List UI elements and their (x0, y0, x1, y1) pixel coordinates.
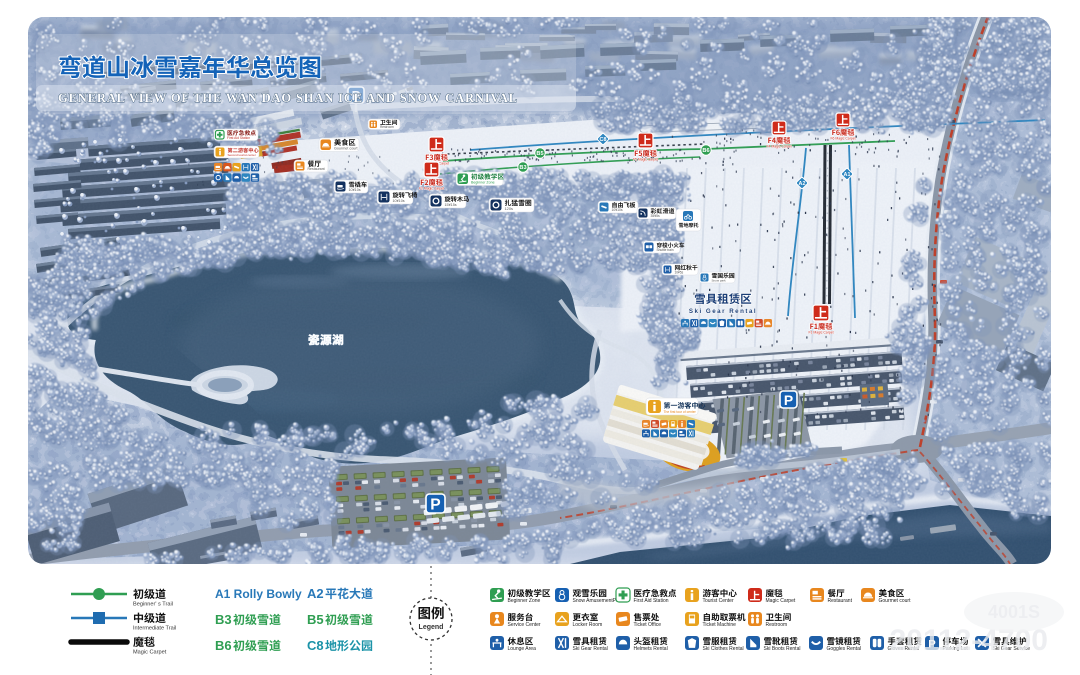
svg-text:B6: B6 (702, 148, 709, 154)
svg-text:F5 Magic Carpet: F5 Magic Carpet (633, 158, 658, 162)
svg-text:10¥10s: 10¥10s (612, 208, 623, 212)
svg-text:Ski Boots Rental: Ski Boots Rental (764, 646, 801, 652)
svg-text:4001S: 4001S (988, 602, 1040, 622)
svg-text:Restaurant: Restaurant (828, 598, 853, 604)
svg-text:120s: 120s (505, 206, 513, 211)
svg-text:Beginner' s Trail: Beginner' s Trail (133, 602, 173, 608)
svg-text:Ticket Office: Ticket Office (634, 622, 662, 628)
svg-text:F1 Magic Carpet: F1 Magic Carpet (808, 331, 833, 335)
svg-text:GENERAL VIEW OF THE WAN DAO SH: GENERAL VIEW OF THE WAN DAO SHAN ICE AND… (58, 91, 518, 105)
svg-text:B5: B5 (536, 151, 543, 157)
svg-text:B6: B6 (215, 638, 232, 653)
svg-text:Beginner Zone: Beginner Zone (508, 598, 541, 604)
svg-text:Restaurant: Restaurant (308, 167, 325, 171)
svg-text:10¥10s: 10¥10s (393, 199, 405, 203)
svg-text:First Aid Station: First Aid Station (227, 136, 250, 140)
svg-text:Ticket Machine: Ticket Machine (703, 622, 737, 628)
svg-text:Locker Room: Locker Room (573, 622, 603, 628)
svg-text:Ski Gear Rental: Ski Gear Rental (689, 308, 757, 315)
svg-text:35¥5s: 35¥5s (651, 214, 661, 218)
svg-text:Ski Gear Rental: Ski Gear Rental (573, 646, 608, 652)
svg-text:10¥10s: 10¥10s (349, 188, 361, 192)
svg-text:The first tour of center: The first tour of center (664, 410, 697, 414)
svg-text:C8: C8 (600, 137, 607, 143)
svg-text:Legend: Legend (419, 624, 444, 631)
svg-text:C8: C8 (307, 638, 324, 653)
svg-text:Gourmet court: Gourmet court (334, 147, 358, 151)
svg-text:Ski Clothes Rental: Ski Clothes Rental (703, 646, 744, 652)
svg-text:Helmets Rental: Helmets Rental (634, 646, 668, 652)
svg-text:Magic Carpet: Magic Carpet (766, 598, 796, 604)
svg-text:15¥15s: 15¥15s (445, 203, 457, 207)
svg-text:Service Center: Service Center (508, 622, 541, 628)
svg-text:F4 Magic Carpet: F4 Magic Carpet (766, 145, 791, 149)
svg-text:Restroom: Restroom (380, 125, 394, 129)
svg-text:B3: B3 (215, 612, 232, 627)
svg-text:P: P (784, 392, 793, 408)
svg-text:First Aid Station: First Aid Station (634, 598, 669, 604)
svg-text:Lounge Area: Lounge Area (508, 646, 537, 652)
svg-text:10¥5s: 10¥5s (675, 270, 684, 274)
svg-text:Shuttle train: Shuttle train (657, 248, 674, 252)
svg-text:Beginner Zone: Beginner Zone (471, 181, 495, 185)
svg-text:Tourist Center: Tourist Center (703, 598, 734, 604)
svg-text:A2: A2 (799, 181, 806, 187)
svg-text:F2 Magic Carpet: F2 Magic Carpet (419, 187, 444, 191)
svg-text:A1: A1 (844, 172, 851, 178)
svg-text:A1 Rolly Bowly: A1 Rolly Bowly (215, 587, 302, 601)
svg-text:B5: B5 (307, 612, 324, 627)
svg-text:Second tourist center: Second tourist center (228, 153, 256, 157)
svg-text:Snow park: Snow park (712, 278, 727, 282)
svg-text:Magic Carpet: Magic Carpet (133, 650, 167, 656)
svg-text:F6 Magic Carpet: F6 Magic Carpet (830, 137, 855, 141)
svg-text:B3: B3 (519, 165, 526, 171)
svg-text:Intermediate Trail: Intermediate Trail (133, 626, 176, 632)
svg-text:Gourmet court: Gourmet court (879, 598, 912, 604)
svg-text:P: P (430, 497, 440, 514)
svg-text:A2: A2 (307, 586, 324, 601)
svg-text:Restroom: Restroom (766, 622, 788, 628)
svg-text:Goggles Rental: Goggles Rental (827, 646, 861, 652)
